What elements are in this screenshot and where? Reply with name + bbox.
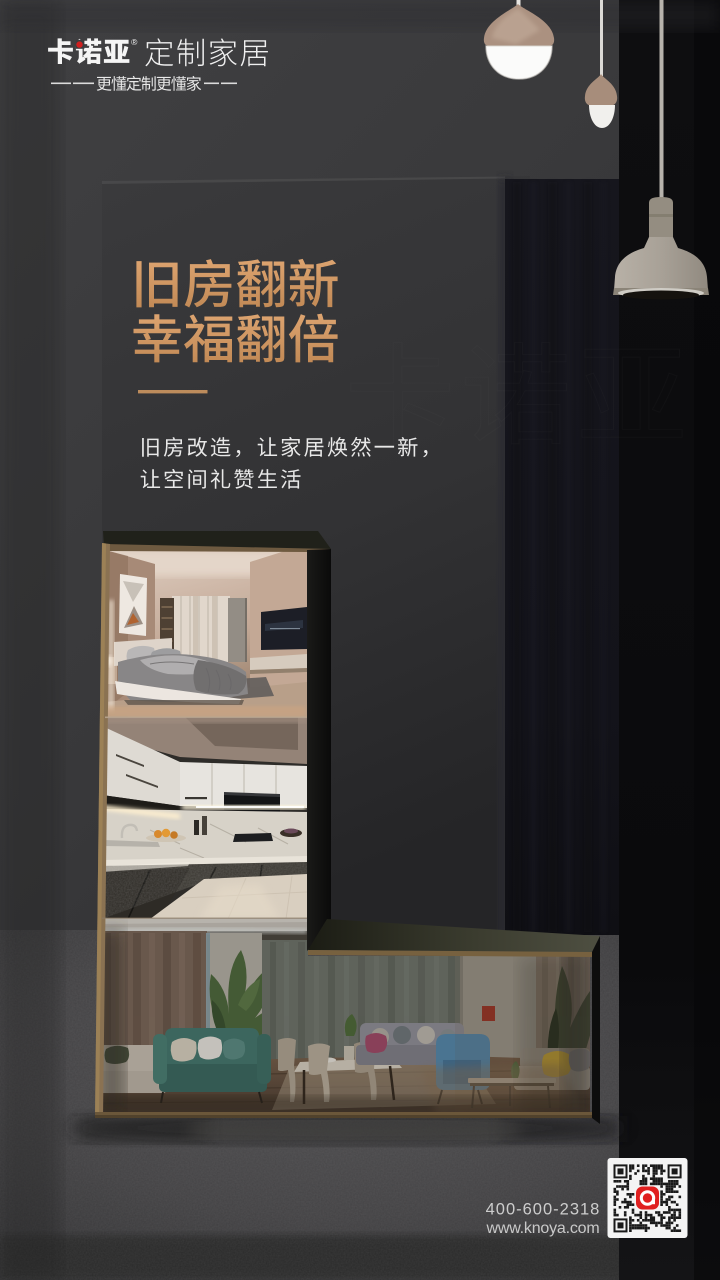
- svg-text:®: ®: [131, 37, 138, 47]
- svg-text:400-600-2318: 400-600-2318: [486, 1201, 601, 1219]
- svg-text:www.knoya.com: www.knoya.com: [486, 1220, 600, 1237]
